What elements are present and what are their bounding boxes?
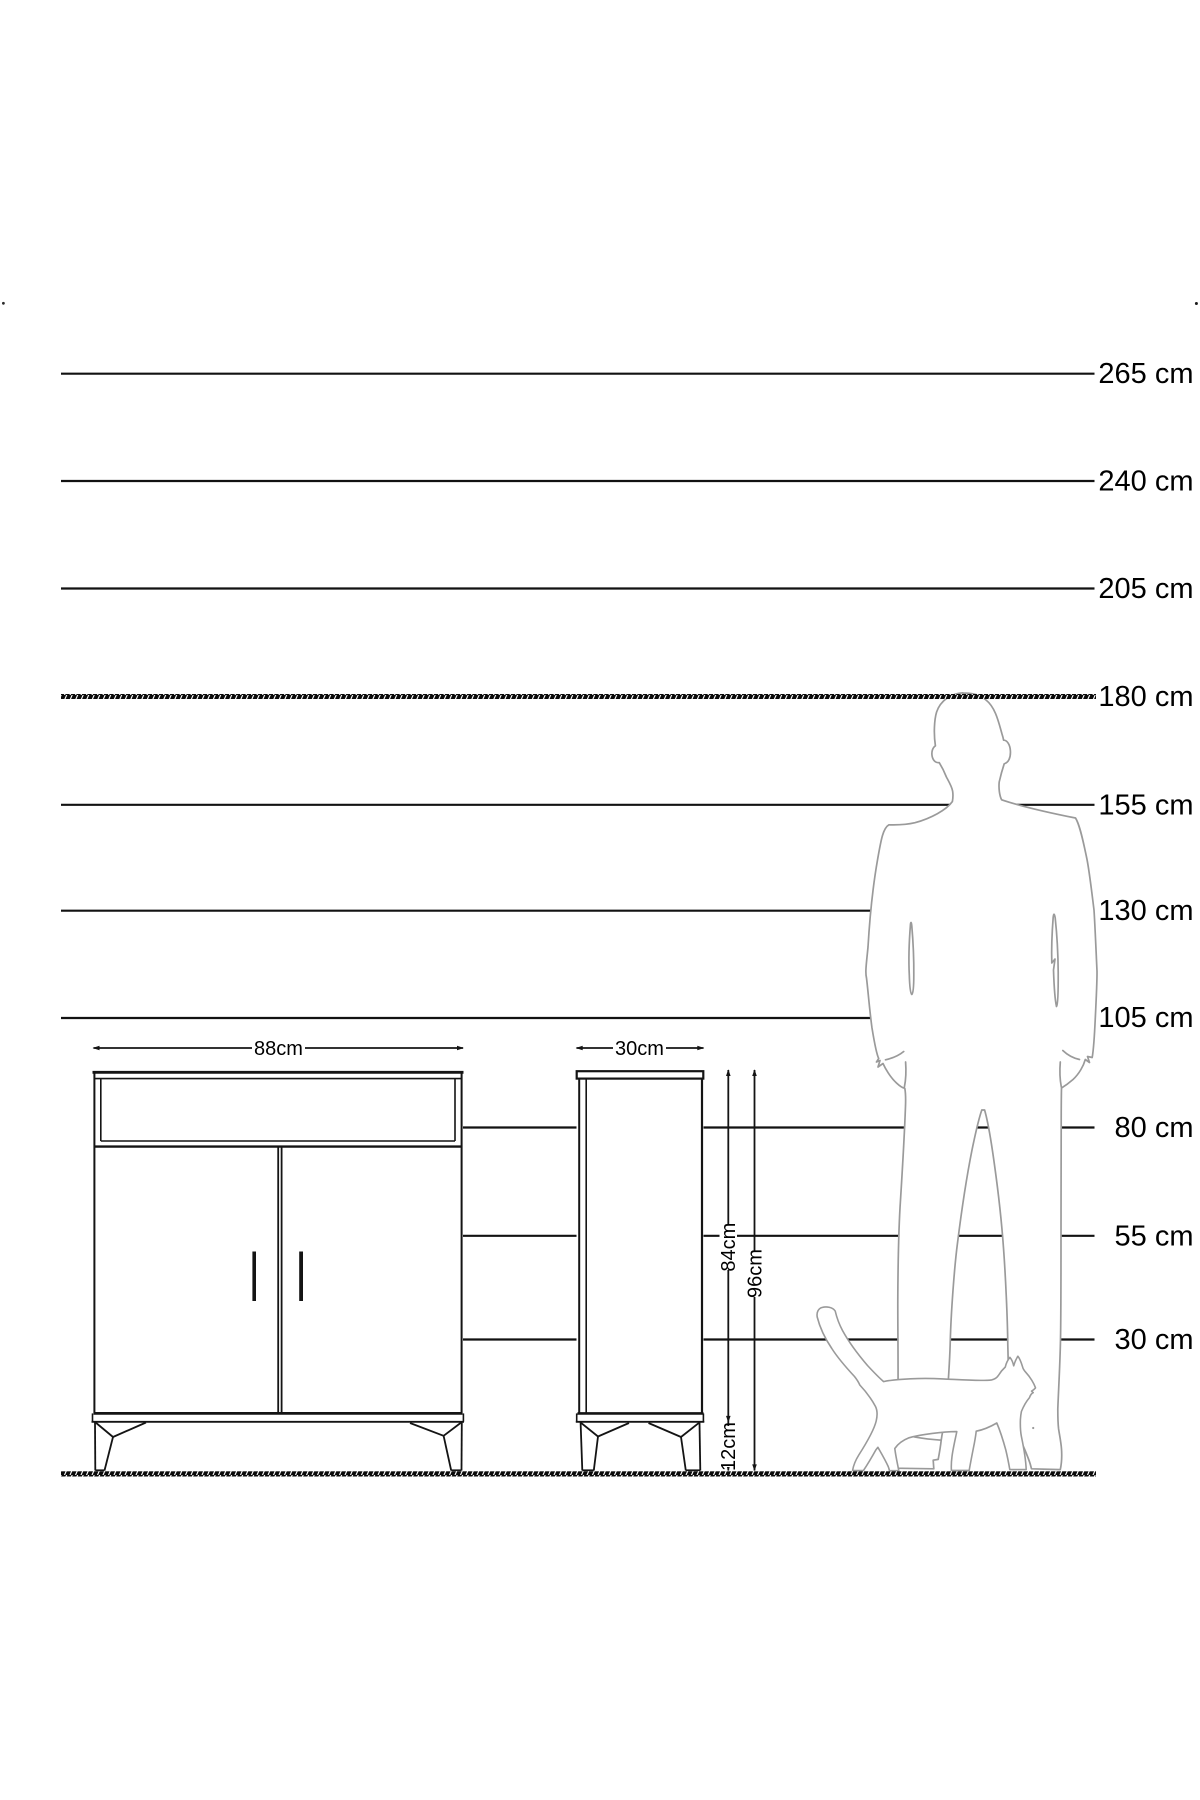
svg-text:12cm: 12cm bbox=[718, 1422, 740, 1471]
svg-text:30cm: 30cm bbox=[615, 1038, 664, 1060]
svg-text:155 cm: 155 cm bbox=[1098, 789, 1193, 821]
svg-text:105 cm: 105 cm bbox=[1098, 1002, 1193, 1034]
svg-text:205 cm: 205 cm bbox=[1098, 573, 1193, 605]
svg-text:55 cm: 55 cm bbox=[1115, 1220, 1194, 1252]
svg-text:30 cm: 30 cm bbox=[1115, 1324, 1194, 1356]
svg-text:88cm: 88cm bbox=[254, 1038, 303, 1060]
svg-text:180 cm: 180 cm bbox=[1098, 681, 1193, 713]
svg-text:240 cm: 240 cm bbox=[1098, 466, 1193, 498]
svg-text:84cm: 84cm bbox=[718, 1223, 740, 1272]
svg-text:96cm: 96cm bbox=[744, 1249, 766, 1298]
svg-text:265 cm: 265 cm bbox=[1098, 358, 1193, 390]
svg-text:80 cm: 80 cm bbox=[1115, 1112, 1194, 1144]
svg-text:130 cm: 130 cm bbox=[1098, 895, 1193, 927]
